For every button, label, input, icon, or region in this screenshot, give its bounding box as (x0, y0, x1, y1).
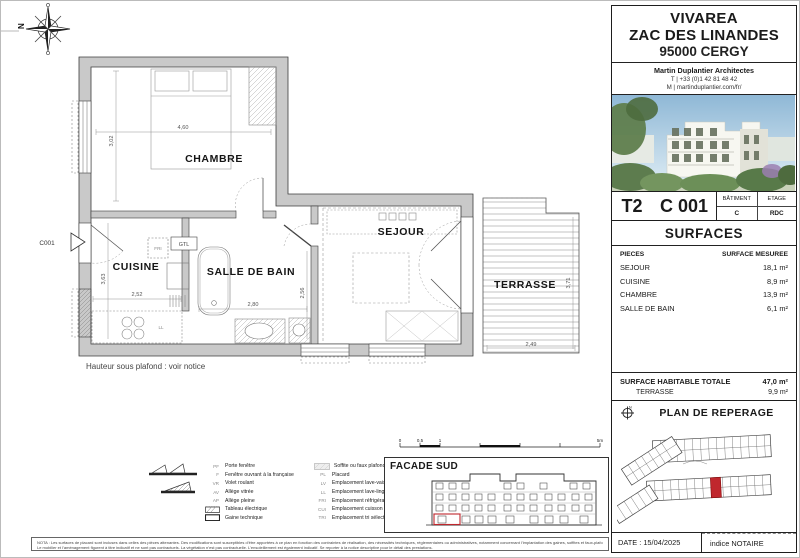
dim-sdb-w: 2,80 (248, 302, 259, 308)
electrical-panel-icon (205, 506, 225, 513)
terrasse-deck (483, 198, 579, 353)
gtl-label: GTL (179, 242, 189, 248)
dim-chambre-h: 3,02 (109, 136, 115, 147)
surfaces-title: SURFACES (612, 220, 796, 245)
facade-sud-panel: FACADE SUD (384, 457, 609, 533)
dim-terrasse-w: 2,49 (526, 342, 537, 348)
batiment-value: C (717, 206, 757, 220)
legend: PFPorte fenêtre FFenêtre ouvrant à la fr… (147, 462, 396, 522)
legend-item: APAllège pleine (205, 496, 294, 505)
surfaces-header: PIECES SURFACE MESUREE (620, 251, 788, 258)
dim-cuisine-h: 3,63 (101, 274, 107, 285)
unit-grid: BÂTIMENT ETAGE C RDC (716, 192, 796, 220)
dim-terrasse-h: 3,71 (566, 278, 572, 289)
soffit-swatch-icon (314, 463, 334, 470)
svg-text:0,5: 0,5 (417, 438, 424, 443)
reperage-title: PLAN DE REPERAGE (645, 407, 788, 419)
legend-item: PFPorte fenêtre (205, 462, 294, 471)
date-row: DATE : 15/04/2025 indice NOTAIRE (612, 532, 796, 552)
dim-chambre-w: 4,60 (178, 125, 189, 131)
architect-block: Martin Duplantier Architectes T | +33 (0… (612, 62, 796, 94)
architect-name: Martin Duplantier Architectes (614, 66, 794, 75)
legend-item: FFenêtre ouvrant à la française (205, 471, 294, 480)
title-block: VIVAREA ZAC DES LINANDES 95000 CERGY Mar… (611, 5, 797, 553)
project-name: VIVAREA (614, 10, 794, 27)
room-label-cuisine: CUISINE (113, 261, 160, 273)
unit-ref-label: C001 (39, 240, 55, 247)
svg-text:N: N (629, 406, 632, 410)
fri-label: FRI (154, 246, 161, 251)
etage-label: ETAGE (757, 192, 797, 206)
terrasse-row: TERRASSE 9,9 m² (620, 389, 788, 396)
project-header: VIVAREA ZAC DES LINANDES 95000 CERGY (612, 6, 796, 62)
surface-row: SEJOUR18,1 m² (620, 263, 788, 272)
etage-value: RDC (757, 206, 797, 220)
total-row: SURFACE HABITABLE TOTALE 47,0 m² (620, 377, 788, 386)
plan-sheet: N (0, 0, 800, 558)
ll-label: LL (158, 325, 164, 330)
svg-text:1: 1 (439, 438, 442, 443)
technical-duct-icon (205, 514, 225, 521)
svg-text:5m: 5m (597, 438, 604, 443)
legend-item: VRVolet roulant (205, 479, 294, 488)
architect-phone: T | +33 (0)1 42 81 48 42 (614, 76, 794, 83)
unit-type: T2 (612, 192, 652, 220)
legend-left-column: PFPorte fenêtre FFenêtre ouvrant à la fr… (205, 462, 294, 522)
indice-value: indice NOTAIRE (702, 533, 796, 552)
facade-elevation (424, 469, 604, 529)
footer-disclaimer: NOTA : Les surfaces de placard sont incl… (31, 537, 609, 551)
reperage-header: N PLAN DE REPERAGE (612, 400, 796, 424)
svg-text:N: N (17, 23, 26, 29)
date-value: DATE : 15/04/2025 (612, 533, 702, 552)
batiment-label: BÂTIMENT (717, 192, 757, 206)
surface-row: CUISINE8,9 m² (620, 277, 788, 286)
ceiling-height-note: Hauteur sous plafond : voir notice (86, 362, 205, 371)
scale-bar: 0 0,5 1 5m (396, 438, 608, 452)
window-symbols-icon (147, 462, 199, 502)
unit-identity-row: T2 C 001 BÂTIMENT ETAGE C RDC (612, 191, 796, 220)
architect-website: M | martinduplantier.com/fr/ (614, 84, 794, 91)
compass-glyph-icon: N (620, 405, 635, 420)
map-unit-highlight (710, 477, 721, 497)
north-compass-icon: N (1, 3, 70, 54)
surface-row: SALLE DE BAIN6,1 m² (620, 304, 788, 313)
dim-cuisine-w: 2,52 (132, 292, 143, 298)
unit-entrance-marker: C001 (39, 233, 85, 251)
dim-sdb-h: 2,56 (300, 288, 306, 299)
room-label-salle-de-bain: SALLE DE BAIN (207, 266, 295, 278)
unit-number: C 001 (652, 192, 716, 220)
surfaces-table: PIECES SURFACE MESUREE SEJOUR18,1 m² CUI… (612, 245, 796, 372)
site-location-map (612, 424, 796, 532)
surface-totals: SURFACE HABITABLE TOTALE 47,0 m² TERRASS… (612, 372, 796, 400)
project-address: ZAC DES LINANDES (614, 27, 794, 44)
room-label-sejour: SEJOUR (378, 226, 425, 238)
legend-item: Tableau électrique (205, 505, 294, 514)
room-label-chambre: CHAMBRE (185, 153, 243, 165)
room-label-terrasse: TERRASSE (494, 279, 556, 291)
project-city: 95000 CERGY (614, 44, 794, 59)
legend-item: AVAllège vitrée (205, 488, 294, 497)
svg-text:0: 0 (399, 438, 402, 443)
legend-item: Gaine technique (205, 514, 294, 523)
building-render-image (612, 94, 796, 191)
surface-row: CHAMBRE13,9 m² (620, 290, 788, 299)
